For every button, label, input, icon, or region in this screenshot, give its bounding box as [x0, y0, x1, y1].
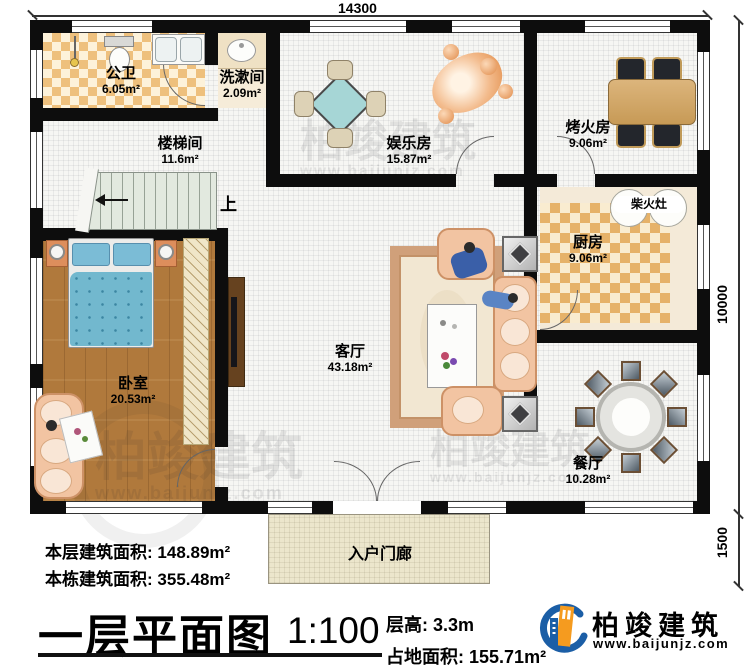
floor-area-value: 148.89m² [157, 543, 230, 562]
toilet-tank [104, 36, 134, 47]
stairs-up-label: 上 [220, 190, 237, 215]
dim-porch-line [738, 514, 740, 586]
porch-label: 入户门廊 [318, 540, 442, 564]
window [697, 225, 710, 289]
side-table [502, 236, 538, 272]
table-flowers [443, 362, 450, 369]
room-label-entertainment: 娱乐房 15.87m² [386, 136, 431, 166]
person-head [46, 420, 57, 431]
dim-porch-label: 1500 [714, 527, 730, 558]
mat-flower [82, 436, 88, 442]
person-head [508, 293, 518, 303]
vanity-sink [155, 37, 177, 62]
floor-plan-page: 14300 10000 1500 柏竣建筑 www.baijunjz.com 柏… [0, 0, 750, 669]
bed-duvet [70, 272, 152, 346]
window [30, 50, 43, 98]
dim-top-line [32, 15, 708, 17]
wall-hall-entertainment [266, 33, 280, 174]
wall-fire-bottom-right [595, 174, 710, 187]
chair [667, 407, 687, 427]
window [72, 20, 152, 33]
entrance-opening [333, 501, 421, 514]
stove-label: 柴火灶 [613, 196, 685, 213]
chair [621, 453, 641, 473]
decor-ball [480, 58, 497, 75]
window [697, 375, 710, 461]
wall-bedroom-right-stub [215, 487, 228, 514]
dim-right-line [738, 20, 740, 514]
dim-top-label: 14300 [338, 0, 377, 16]
chair [621, 361, 641, 381]
land-area-line: 占地面积: 155.71m² [386, 643, 546, 669]
room-label-fire-room: 烤火房 9.06m² [565, 120, 610, 150]
mat-flower [74, 428, 81, 435]
floor-area-line: 本层建筑面积: 148.89m² [45, 538, 230, 563]
chair [294, 91, 314, 117]
pillow [72, 243, 110, 266]
window [697, 52, 710, 150]
stairs-arrow [104, 199, 128, 201]
light-pull-cord [74, 36, 76, 60]
stairs [88, 172, 217, 230]
wall-kitchen-bottom [524, 330, 710, 343]
floor-area-label: 本层建筑面积: [45, 543, 153, 562]
table-cup [440, 320, 446, 326]
wall-entertainment-fire [524, 33, 537, 174]
room-label-washroom: 洗漱间 2.09m² [219, 70, 264, 100]
table-flowers [450, 358, 457, 365]
wall-bathroom-bottom [30, 108, 218, 121]
dim-right-label: 10000 [714, 285, 730, 324]
window [448, 501, 506, 514]
decor-ball [443, 44, 459, 60]
chair [327, 128, 353, 148]
room-label-kitchen: 厨房 9.06m² [569, 235, 607, 265]
chair [366, 91, 386, 117]
window [268, 501, 312, 514]
wall-bedroom-right [215, 228, 228, 447]
table-cup [452, 324, 457, 329]
scale-label: 1:100 [287, 610, 380, 652]
room-label-stairwell: 楼梯间 11.6m² [157, 136, 202, 166]
room-label-bathroom: 公卫 6.05m² [102, 66, 140, 96]
fire-room-table [608, 79, 696, 125]
decor-ball [498, 84, 513, 99]
tv [231, 297, 237, 367]
side-table [502, 396, 538, 432]
vanity-sink [180, 37, 202, 62]
brand-url: www.baijunjz.com [593, 636, 729, 651]
chair [616, 122, 646, 148]
stairs-arrow-head [95, 194, 105, 206]
coffee-table [427, 304, 477, 388]
room-label-dining: 餐厅 10.28m² [566, 456, 611, 486]
chair [652, 122, 682, 148]
window [310, 20, 406, 33]
title-underline [38, 653, 382, 657]
window [30, 132, 43, 208]
pillow [113, 243, 151, 266]
building-area-line: 本栋建筑面积: 355.48m² [45, 565, 230, 590]
window [585, 20, 670, 33]
wall-entertainment-bottom [266, 174, 456, 187]
room-label-living: 客厅 43.18m² [328, 344, 373, 374]
building-area-label: 本栋建筑面积: [45, 570, 153, 589]
building-area-value: 355.48m² [157, 570, 230, 589]
cushion [500, 318, 530, 346]
cushion [500, 352, 530, 380]
cushion [40, 468, 72, 494]
wall-fire-bottom-left [494, 174, 557, 187]
window [66, 501, 202, 514]
room-label-bedroom: 卧室 20.53m² [111, 376, 156, 406]
chair [575, 407, 595, 427]
light-pull [70, 58, 79, 67]
table-flowers [441, 352, 449, 360]
washbasin-faucet [239, 43, 244, 48]
decor-ball [438, 108, 454, 124]
window [30, 258, 43, 364]
dining-table-center [612, 398, 650, 436]
person-head [464, 242, 475, 253]
brand-logo-icon [536, 602, 588, 658]
wardrobe [183, 238, 209, 445]
nightstand-lamp [49, 244, 65, 260]
story-height-line: 层高: 3.3m [386, 611, 474, 637]
wall-bath-wash-divider [205, 33, 218, 65]
nightstand-lamp [158, 244, 174, 260]
window [585, 501, 693, 514]
window [452, 20, 520, 33]
chair [327, 60, 353, 80]
cushion [452, 396, 484, 424]
